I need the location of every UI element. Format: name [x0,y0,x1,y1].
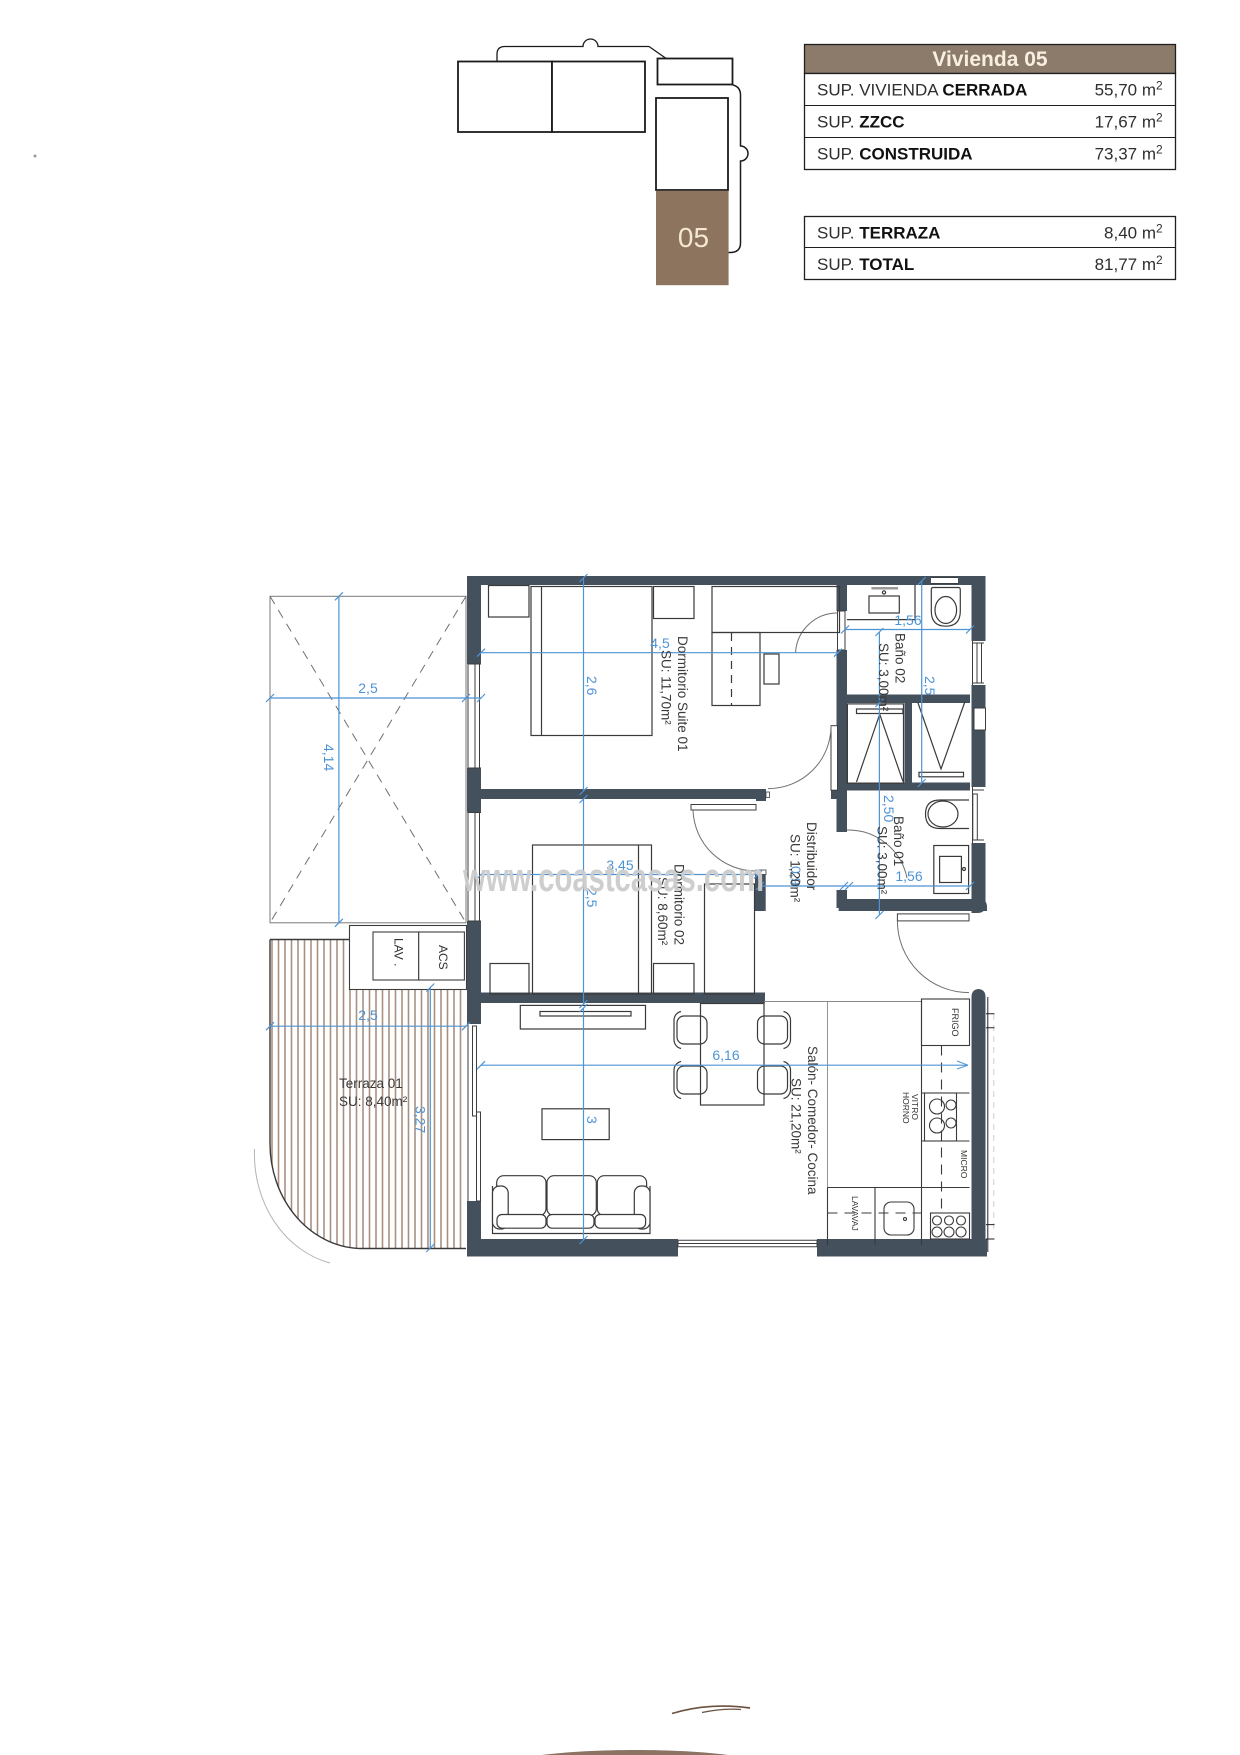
svg-text:05: 05 [678,222,709,253]
svg-text:2,5: 2,5 [922,676,938,696]
svg-text:2: 2 [1156,253,1163,267]
svg-text:17,67 m: 17,67 m [1095,113,1156,132]
svg-text:LAVAVAJ: LAVAVAJ [850,1196,860,1231]
svg-text:SUP. TERRAZA: SUP. TERRAZA [817,224,940,243]
svg-text:73,37 m: 73,37 m [1095,145,1156,164]
svg-text:www.coastcasas.com: www.coastcasas.com [462,856,764,900]
svg-text:2: 2 [1156,111,1163,125]
svg-text:SUP. CONSTRUIDA: SUP. CONSTRUIDA [817,145,973,164]
svg-text:SUP. TOTAL: SUP. TOTAL [817,255,914,274]
svg-text:Terraza 01: Terraza 01 [339,1076,403,1091]
svg-text:SUP. ZZCC: SUP. ZZCC [817,113,905,132]
svg-text:Vivienda 05: Vivienda 05 [932,48,1048,71]
svg-text:MICRO: MICRO [959,1150,969,1179]
svg-text:SU: 8,40m²: SU: 8,40m² [339,1094,408,1109]
svg-text:2: 2 [1156,79,1163,93]
svg-text:HORNO: HORNO [901,1092,911,1124]
svg-text:2,5: 2,5 [358,680,378,696]
svg-text:ACS: ACS [436,945,450,970]
svg-text:LAV .: LAV . [392,938,406,966]
svg-text:2,5: 2,5 [358,1007,378,1023]
svg-text:8,40 m: 8,40 m [1104,224,1156,243]
svg-text:2,6: 2,6 [584,676,600,696]
svg-text:81,77 m: 81,77 m [1095,255,1156,274]
svg-text:1,56: 1,56 [895,868,922,884]
svg-text:2: 2 [1156,143,1163,157]
svg-text:1,56: 1,56 [894,612,921,628]
svg-text:FRIGO: FRIGO [950,1008,960,1037]
svg-text:SUP. VIVIENDA CERRADA: SUP. VIVIENDA CERRADA [817,81,1027,100]
svg-text:55,70 m: 55,70 m [1095,81,1156,100]
svg-text:4,5: 4,5 [650,635,670,651]
svg-text:3,27: 3,27 [413,1106,429,1133]
svg-text:2: 2 [1156,222,1163,236]
svg-text:4,14: 4,14 [321,744,337,771]
svg-text:3: 3 [584,1116,600,1124]
svg-text:6,16: 6,16 [712,1047,739,1063]
